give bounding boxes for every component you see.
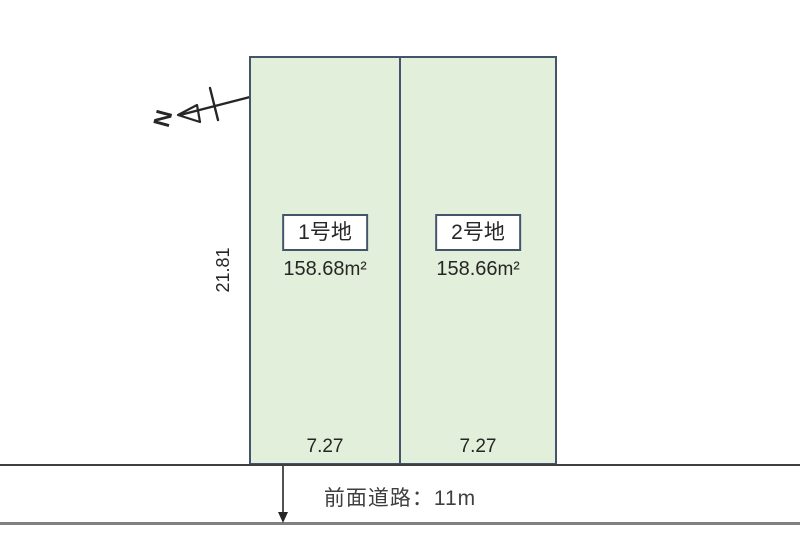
road-width-arrow-icon xyxy=(276,466,290,524)
lot-2-area-label: 158.66m² xyxy=(401,258,555,281)
lot-1-name-label: 1号地 xyxy=(298,221,352,244)
road-label: 前面道路：11m xyxy=(0,482,800,512)
lot-1-area-label: 158.68m² xyxy=(251,258,399,281)
north-label: N xyxy=(148,107,177,130)
lot-2-name-box: 2号地 xyxy=(435,214,521,251)
lot-2-area-unit: m² xyxy=(498,259,520,280)
parcel-group: 1号地 158.68m² 7.27 2号地 158.66m² 7.27 xyxy=(249,56,557,465)
road-edge-line xyxy=(0,522,800,525)
north-arrow-icon: N xyxy=(148,72,260,132)
lot-1-frontage-label: 7.27 xyxy=(251,436,399,458)
lot-2-name-label: 2号地 xyxy=(451,221,505,244)
depth-dimension-label: 21.81 xyxy=(213,243,233,297)
site-plan: N 21.81 1号地 158.68m² 7.27 2号地 158.66m² 7… xyxy=(0,0,800,540)
lot-2-area-value: 158.66 xyxy=(436,258,497,280)
lot-2-parcel: 2号地 158.66m² 7.27 xyxy=(401,58,555,463)
lot-2-frontage-label: 7.27 xyxy=(401,436,555,458)
road-boundary-line xyxy=(0,464,800,466)
lot-1-name-box: 1号地 xyxy=(282,214,368,251)
lot-1-area-value: 158.68 xyxy=(283,258,344,280)
lot-1-parcel: 1号地 158.68m² 7.27 xyxy=(251,58,401,463)
lot-1-area-unit: m² xyxy=(345,259,367,280)
